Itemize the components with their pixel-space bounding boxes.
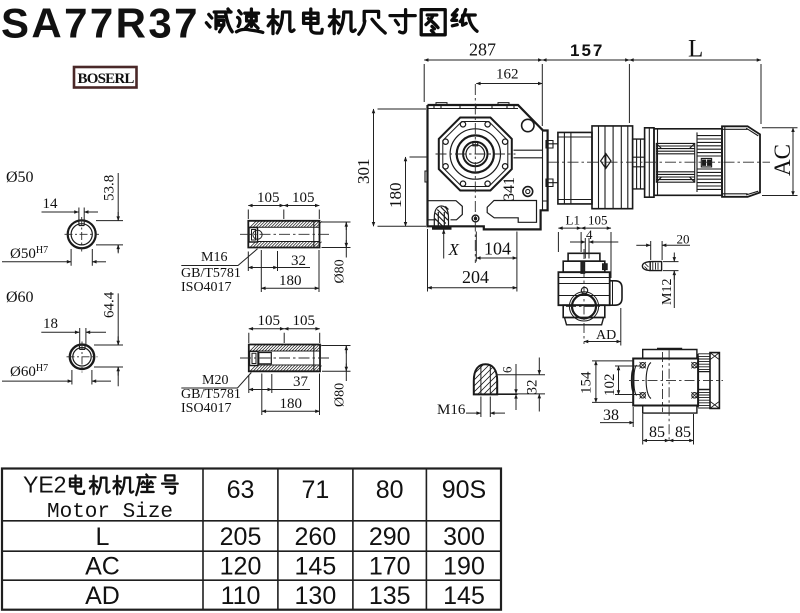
svg-text:157: 157 (570, 41, 604, 60)
svg-text:GB/T5781: GB/T5781 (181, 387, 241, 402)
svg-text:Motor Size: Motor Size (47, 501, 173, 524)
svg-text:170: 170 (369, 553, 411, 581)
svg-text:L1: L1 (566, 213, 580, 228)
svg-text:63: 63 (227, 476, 255, 504)
svg-text:205: 205 (220, 523, 262, 551)
svg-text:X: X (448, 240, 460, 259)
svg-text:20: 20 (677, 232, 690, 247)
svg-text:L: L (96, 523, 110, 551)
svg-text:AC: AC (770, 144, 795, 176)
svg-text:105: 105 (257, 190, 280, 206)
svg-text:M12: M12 (660, 279, 675, 305)
svg-text:145: 145 (295, 553, 337, 581)
svg-text:135: 135 (369, 582, 411, 610)
svg-text:M16: M16 (437, 402, 466, 418)
svg-text:85: 85 (675, 424, 691, 441)
svg-text:ISO4017: ISO4017 (181, 401, 232, 416)
svg-text:341: 341 (501, 177, 518, 201)
svg-text:AD: AD (596, 328, 616, 343)
svg-text:180: 180 (386, 183, 405, 209)
svg-text:4: 4 (586, 227, 593, 242)
svg-text:290: 290 (369, 523, 411, 551)
svg-text:M16: M16 (201, 250, 227, 265)
svg-text:M20: M20 (202, 373, 228, 388)
svg-text:SA77R37: SA77R37 (1, 0, 200, 47)
svg-text:18: 18 (43, 316, 58, 332)
svg-text:53.8: 53.8 (102, 175, 118, 201)
svg-text:80: 80 (376, 476, 404, 504)
svg-text:301: 301 (354, 159, 373, 185)
svg-text:180: 180 (279, 273, 302, 289)
svg-text:ISO4017: ISO4017 (181, 280, 232, 295)
svg-text:105: 105 (292, 190, 315, 206)
svg-text:145: 145 (443, 582, 485, 610)
svg-text:Ø60: Ø60 (6, 289, 34, 306)
svg-text:AD: AD (85, 582, 120, 610)
svg-text:6: 6 (500, 366, 515, 373)
svg-text:14: 14 (43, 196, 59, 212)
svg-text:104: 104 (484, 239, 511, 259)
svg-text:32: 32 (525, 380, 541, 395)
svg-text:300: 300 (443, 523, 485, 551)
svg-text:32: 32 (291, 253, 306, 269)
svg-text:37: 37 (293, 374, 309, 390)
svg-text:71: 71 (301, 476, 329, 504)
svg-text:AC: AC (85, 553, 120, 581)
svg-text:90S: 90S (442, 476, 486, 504)
svg-text:102: 102 (602, 374, 618, 397)
svg-text:180: 180 (280, 396, 303, 412)
svg-text:L: L (688, 36, 703, 63)
svg-text:120: 120 (220, 553, 262, 581)
svg-text:Ø50H7: Ø50H7 (10, 245, 48, 262)
svg-text:Ø50: Ø50 (6, 169, 34, 186)
svg-text:YE2: YE2 (23, 472, 66, 498)
svg-text:85: 85 (649, 424, 665, 441)
svg-text:Ø60H7: Ø60H7 (10, 363, 48, 380)
svg-text:Ø80: Ø80 (333, 383, 348, 407)
svg-text:BOSERL: BOSERL (78, 71, 135, 87)
svg-text:38: 38 (603, 407, 619, 424)
svg-text:287: 287 (469, 40, 496, 60)
svg-text:64.4: 64.4 (102, 291, 118, 318)
svg-text:110: 110 (221, 582, 261, 610)
svg-text:204: 204 (462, 267, 489, 287)
svg-text:154: 154 (579, 371, 595, 394)
svg-text:260: 260 (295, 523, 337, 551)
svg-text:105: 105 (293, 313, 316, 329)
svg-text:190: 190 (443, 553, 485, 581)
svg-text:Ø80: Ø80 (333, 259, 348, 283)
svg-text:105: 105 (588, 213, 608, 228)
svg-text:130: 130 (295, 582, 337, 610)
svg-text:162: 162 (496, 67, 519, 83)
svg-text:105: 105 (258, 313, 281, 329)
svg-text:GB/T5781: GB/T5781 (181, 266, 241, 281)
